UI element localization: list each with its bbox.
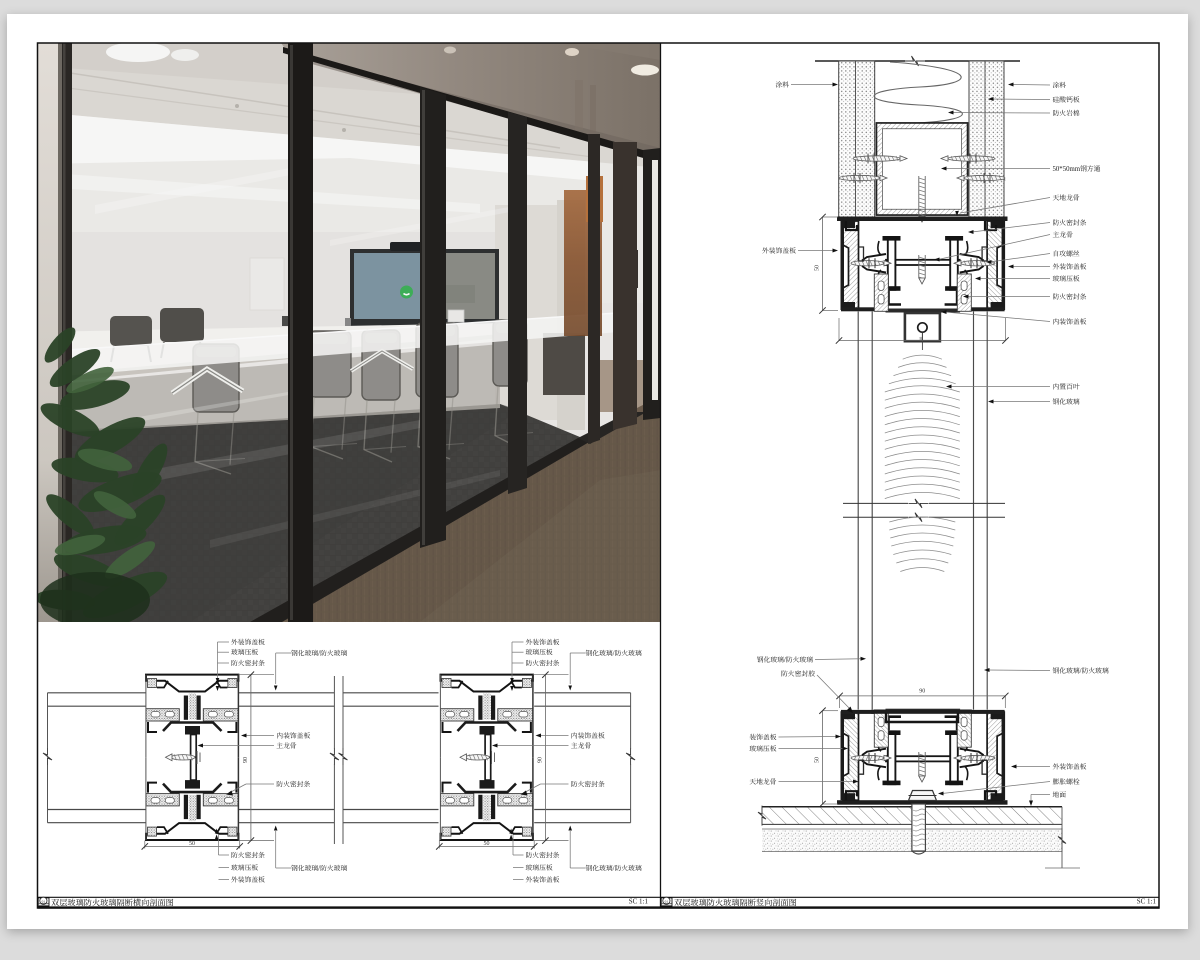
svg-text:天地龙骨: 天地龙骨 (1053, 192, 1080, 202)
svg-text:外装饰盖板: 外装饰盖板 (526, 636, 560, 646)
svg-text:钢化玻璃/防火玻璃: 钢化玻璃/防火玻璃 (586, 863, 642, 873)
svg-text:防火岩棉: 防火岩棉 (1053, 107, 1080, 117)
svg-text:玻璃压板: 玻璃压板 (749, 743, 776, 753)
svg-text:涂料: 涂料 (1053, 79, 1067, 89)
svg-text:主龙骨: 主龙骨 (571, 740, 592, 750)
svg-text:钢化玻璃: 钢化玻璃 (1053, 396, 1080, 406)
svg-text:防火密封胶: 防火密封胶 (781, 668, 815, 678)
svg-text:玻璃压板: 玻璃压板 (231, 647, 258, 657)
svg-text:玻璃压板: 玻璃压板 (526, 862, 553, 872)
svg-text:内装饰盖板: 内装饰盖板 (276, 730, 310, 740)
svg-text:双层玻璃防火玻璃隔断竖向剖面图: 双层玻璃防火玻璃隔断竖向剖面图 (674, 897, 797, 908)
svg-text:钢化玻璃/防火玻璃: 钢化玻璃/防火玻璃 (586, 648, 642, 658)
svg-text:防火密封条: 防火密封条 (1053, 291, 1087, 301)
svg-text:90: 90 (240, 757, 249, 763)
svg-text:01: 01 (42, 899, 46, 903)
svg-text:90: 90 (919, 685, 925, 694)
svg-text:50: 50 (812, 265, 821, 271)
svg-text:90: 90 (534, 757, 543, 763)
svg-text:内装饰盖板: 内装饰盖板 (571, 730, 605, 740)
svg-text:内装饰盖板: 内装饰盖板 (1053, 316, 1087, 326)
svg-text:玻璃压板: 玻璃压板 (231, 862, 258, 872)
svg-text:装饰盖板: 装饰盖板 (749, 731, 776, 741)
svg-text:01: 01 (665, 899, 669, 903)
svg-text:硅酸钙板: 硅酸钙板 (1053, 94, 1080, 104)
svg-text:膨胀螺栓: 膨胀螺栓 (1053, 776, 1080, 786)
svg-text:SC 1:1: SC 1:1 (1137, 898, 1157, 906)
svg-text:外装饰盖板: 外装饰盖板 (526, 874, 560, 884)
svg-text:钢化玻璃/防火玻璃: 钢化玻璃/防火玻璃 (1053, 665, 1109, 675)
svg-text:外装饰盖板: 外装饰盖板 (762, 245, 796, 255)
svg-text:外装饰盖板: 外装饰盖板 (1053, 761, 1087, 771)
svg-text:内置百叶: 内置百叶 (1053, 381, 1080, 391)
svg-text:防火密封条: 防火密封条 (231, 657, 265, 667)
svg-text:防火密封条: 防火密封条 (526, 849, 560, 859)
svg-text:天地龙骨: 天地龙骨 (749, 776, 776, 786)
svg-text:50: 50 (189, 838, 195, 847)
svg-text:钢化玻璃/防火玻璃: 钢化玻璃/防火玻璃 (291, 863, 347, 873)
svg-text:自攻螺丝: 自攻螺丝 (1053, 248, 1080, 258)
svg-text:外装饰盖板: 外装饰盖板 (231, 636, 265, 646)
svg-text:防火密封条: 防火密封条 (276, 779, 310, 789)
svg-text:50: 50 (812, 757, 821, 763)
svg-text:防火密封条: 防火密封条 (526, 657, 560, 667)
svg-text:防火密封条: 防火密封条 (571, 779, 605, 789)
svg-text:防火密封条: 防火密封条 (1053, 217, 1087, 227)
svg-text:主龙骨: 主龙骨 (276, 740, 297, 750)
svg-text:地面: 地面 (1053, 789, 1067, 799)
svg-text:玻璃压板: 玻璃压板 (1053, 273, 1080, 283)
svg-text:50*50mm钢方通: 50*50mm钢方通 (1053, 163, 1101, 173)
svg-text:涂料: 涂料 (775, 79, 789, 89)
svg-text:外装饰盖板: 外装饰盖板 (1053, 261, 1087, 271)
svg-text:钢化玻璃/防火玻璃: 钢化玻璃/防火玻璃 (291, 648, 347, 658)
svg-text:外装饰盖板: 外装饰盖板 (231, 874, 265, 884)
svg-text:双层玻璃防火玻璃隔断横向剖面图: 双层玻璃防火玻璃隔断横向剖面图 (51, 897, 174, 908)
svg-text:防火密封条: 防火密封条 (231, 849, 265, 859)
svg-text:玻璃压板: 玻璃压板 (526, 647, 553, 657)
svg-text:主龙骨: 主龙骨 (1053, 229, 1074, 239)
svg-text:钢化玻璃/防火玻璃: 钢化玻璃/防火玻璃 (757, 654, 813, 664)
svg-text:50: 50 (484, 838, 490, 847)
svg-text:SC 1:1: SC 1:1 (629, 898, 649, 906)
